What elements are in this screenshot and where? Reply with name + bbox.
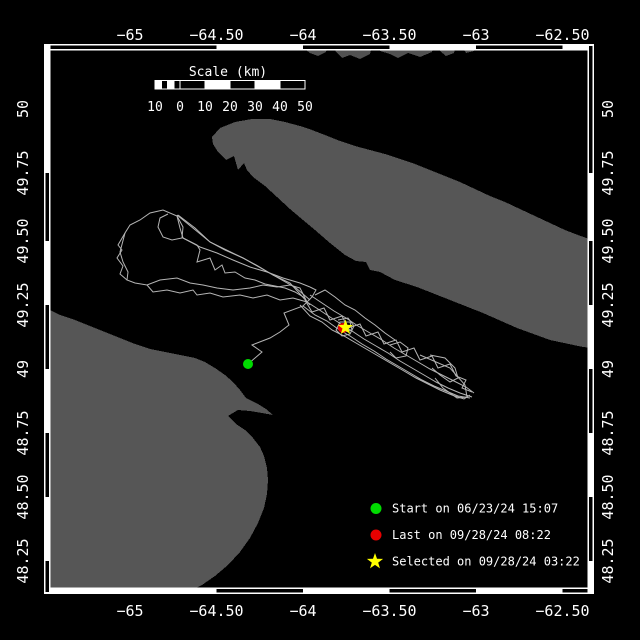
legend-label: Selected on 09/28/24 03:22 <box>392 555 580 569</box>
scale-bar-filled-segment <box>205 81 230 90</box>
start-position-marker[interactable] <box>243 359 253 369</box>
frame-zebra-box <box>45 305 49 369</box>
frame-line <box>44 588 594 595</box>
longitude-label-bottom: −63.50 <box>362 602 416 620</box>
frame-zebra-box <box>45 433 49 497</box>
longitude-label-bottom: −64 <box>289 602 316 620</box>
legend: Start on 06/23/24 15:07Last on 09/28/24 … <box>367 502 580 569</box>
longitude-label-top: −63.50 <box>362 26 416 44</box>
frame-zebra-box <box>589 369 593 433</box>
longitude-label-top: −62.50 <box>535 26 589 44</box>
latitude-label-left: 50 <box>14 100 32 118</box>
latitude-label-right: 49.75 <box>599 150 617 195</box>
frame-zebra-box <box>390 589 477 593</box>
legend-label: Last on 09/28/24 08:22 <box>392 528 551 542</box>
longitude-label-top: −64 <box>289 26 316 44</box>
longitude-label-bottom: −65 <box>116 602 143 620</box>
latitude-label-right: 49.50 <box>599 218 617 263</box>
track-segment[interactable] <box>430 355 458 382</box>
latitude-label-left: 48.25 <box>14 538 32 583</box>
land-anticosti-island <box>212 119 592 348</box>
frame-zebra-box <box>589 497 593 561</box>
latitude-label-right: 48.50 <box>599 474 617 519</box>
frame-zebra-box <box>589 241 593 305</box>
legend-last-marker-icon <box>371 530 382 541</box>
frame-zebra-box <box>130 45 217 49</box>
latitude-label-left: 48.75 <box>14 410 32 455</box>
scale-bar-filled-segment <box>255 81 280 90</box>
frame-zebra-box <box>589 109 593 173</box>
latitude-label-right: 48.75 <box>599 410 617 455</box>
map-canvas[interactable]: Scale (km)1001020304050 −65−64.50−64−63.… <box>0 0 640 640</box>
legend-start-marker-icon <box>371 503 382 514</box>
latitude-label-right: 49 <box>599 360 617 378</box>
latitude-label-right: 50 <box>599 100 617 118</box>
track-segment[interactable] <box>177 215 310 300</box>
track-segment[interactable] <box>305 300 472 392</box>
land-gaspe-peninsula <box>46 308 273 592</box>
legend-label: Start on 06/23/24 15:07 <box>392 502 558 516</box>
frame-zebra-box <box>45 173 49 241</box>
scale-bar-tick-label: 0 <box>176 100 184 115</box>
legend-selected-marker-icon <box>367 553 383 568</box>
track-segment[interactable] <box>307 302 472 397</box>
track-segment[interactable] <box>120 210 310 302</box>
latitude-label-left: 49.50 <box>14 218 32 263</box>
frame-zebra-box <box>476 45 563 49</box>
latitude-label-left: 49.75 <box>14 150 32 195</box>
frame-zebra-box <box>303 45 390 49</box>
frame-zebra-box <box>45 561 49 592</box>
latitude-label-right: 49.25 <box>599 282 617 327</box>
longitude-label-top: −63 <box>462 26 489 44</box>
longitude-label-bottom: −63 <box>462 602 489 620</box>
track-segment[interactable] <box>117 233 127 280</box>
scale-bar-filled-segment <box>155 81 161 90</box>
longitude-label-top: −65 <box>116 26 143 44</box>
scale-bar-filled-segment <box>168 81 174 90</box>
latitude-label-right: 48.25 <box>599 538 617 583</box>
scale-bar-tick-label: 20 <box>222 100 238 115</box>
map-viewer-window: Scale (km)1001020304050 −65−64.50−64−63.… <box>0 0 640 640</box>
latitude-label-left: 49.25 <box>14 282 32 327</box>
track-segment[interactable] <box>300 305 470 399</box>
longitude-label-bottom: −62.50 <box>535 602 589 620</box>
scale-bar: Scale (km)1001020304050 <box>147 65 313 115</box>
longitude-label-top: −64.50 <box>189 26 243 44</box>
scale-bar-tick-label: 40 <box>272 100 288 115</box>
frame-zebra-box <box>217 589 304 593</box>
scale-bar-tick-label: 10 <box>197 100 213 115</box>
latitude-label-left: 48.50 <box>14 474 32 519</box>
scale-bar-tick-label: 50 <box>297 100 313 115</box>
longitude-label-bottom: −64.50 <box>189 602 243 620</box>
latitude-label-left: 49 <box>14 360 32 378</box>
scale-bar-title: Scale (km) <box>189 65 267 80</box>
frame-zebra-box <box>46 45 130 49</box>
scale-bar-tick-label: 30 <box>247 100 263 115</box>
scale-bar-tick-label: 10 <box>147 100 163 115</box>
frame-zebra-box <box>589 46 593 109</box>
